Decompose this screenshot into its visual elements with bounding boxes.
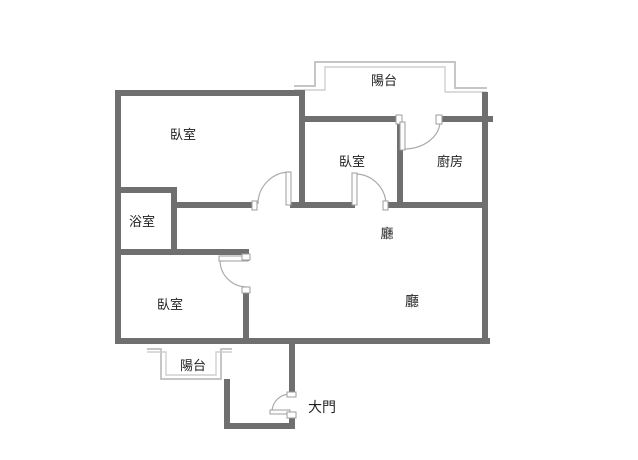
door-bedroom3-jamb-bottom <box>242 287 250 293</box>
label-kitchen: 廚房 <box>437 154 463 170</box>
wall-bedroom2-top <box>299 116 398 122</box>
door-entry-jamb-bottom <box>287 412 296 418</box>
door-bedroom1-leaf <box>286 172 291 205</box>
door-kitchen-leaf <box>400 122 405 150</box>
wall-bedroom3-right-lower <box>243 288 249 344</box>
wall-hall-right <box>386 202 487 208</box>
label-bedroom-middle: 臥室 <box>339 154 365 170</box>
wall-bathroom-right <box>171 187 177 255</box>
door-bedroom3 <box>219 254 250 293</box>
door-bedroom1-jamb <box>252 201 257 210</box>
label-balcony-bottom: 陽台 <box>180 359 206 374</box>
wall-hall-left <box>171 202 255 208</box>
door-kitchen-arc <box>405 122 440 149</box>
wall-bottom-outer <box>115 338 490 344</box>
floor-plan-svg: 陽台 臥室 臥室 廚房 浴室 廳 臥室 廳 陽台 大門 <box>0 0 638 460</box>
wall-hall-middle <box>290 202 355 208</box>
door-entry <box>270 392 296 418</box>
door-bedroom2 <box>352 173 388 210</box>
wall-bathroom-top <box>115 187 177 193</box>
wall-bathroom-bottom <box>115 249 249 255</box>
wall-bedroom1-right <box>299 90 305 208</box>
label-hall-lower: 廳 <box>405 293 419 310</box>
label-main-door: 大門 <box>308 400 336 416</box>
door-kitchen-jamb-right <box>436 115 442 124</box>
label-balcony-top: 陽台 <box>371 74 397 89</box>
door-bedroom2-arc <box>355 174 386 204</box>
door-bedroom3-arc <box>220 261 246 287</box>
label-hall-upper: 廳 <box>380 226 393 242</box>
wall-entry-left <box>224 379 230 429</box>
wall-right-outer <box>482 92 488 344</box>
label-bathroom: 浴室 <box>129 214 155 230</box>
wall-left-outer <box>115 90 121 344</box>
door-bedroom3-jamb-top <box>242 254 250 260</box>
door-entry-jamb-top <box>287 392 296 397</box>
wall-top-bedroom1 <box>115 90 305 96</box>
label-bedroom-top-left: 臥室 <box>170 127 196 143</box>
wall-entry-right-upper <box>289 344 295 393</box>
door-bedroom2-jamb <box>383 201 388 210</box>
door-kitchen <box>396 115 442 150</box>
door-bedroom1 <box>252 172 291 210</box>
door-bedroom2-leaf <box>352 173 357 205</box>
label-bedroom-bottom-left: 臥室 <box>157 297 183 313</box>
floor-plan-canvas: 陽台 臥室 臥室 廚房 浴室 廳 臥室 廳 陽台 大門 <box>0 0 638 460</box>
wall-entry-bottom <box>224 423 295 429</box>
door-bedroom1-arc <box>258 172 290 204</box>
